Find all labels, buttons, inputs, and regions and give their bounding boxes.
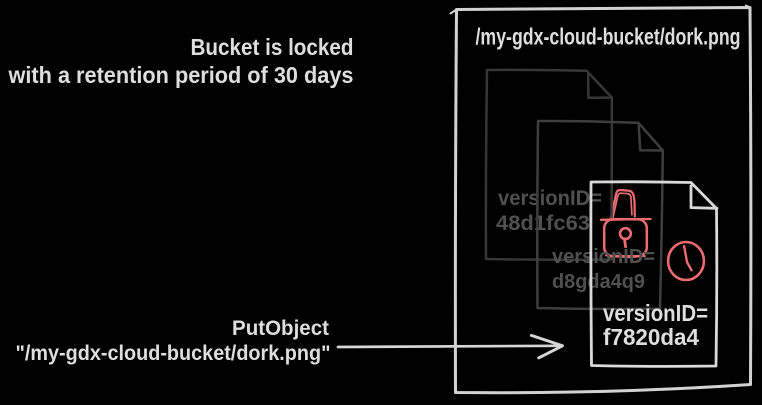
svg-text:/my-gdx-cloud-bucket/dork.png: /my-gdx-cloud-bucket/dork.png (476, 24, 741, 50)
svg-text:d8gda4q9: d8gda4q9 (552, 270, 645, 293)
svg-text:versionID=: versionID= (603, 300, 708, 326)
svg-text:with a retention period of 30: with a retention period of 30 days (8, 62, 354, 88)
svg-text:versionID=: versionID= (552, 245, 655, 268)
svg-text:versionID=: versionID= (498, 187, 602, 210)
svg-text:48d1fc63: 48d1fc63 (496, 212, 590, 235)
svg-text:PutObject: PutObject (232, 316, 329, 340)
svg-text:"/my-gdx-cloud-bucket/dork.png: "/my-gdx-cloud-bucket/dork.png" (16, 342, 331, 365)
svg-text:Bucket is locked: Bucket is locked (191, 34, 354, 60)
svg-text:f7820da4: f7820da4 (603, 324, 699, 350)
